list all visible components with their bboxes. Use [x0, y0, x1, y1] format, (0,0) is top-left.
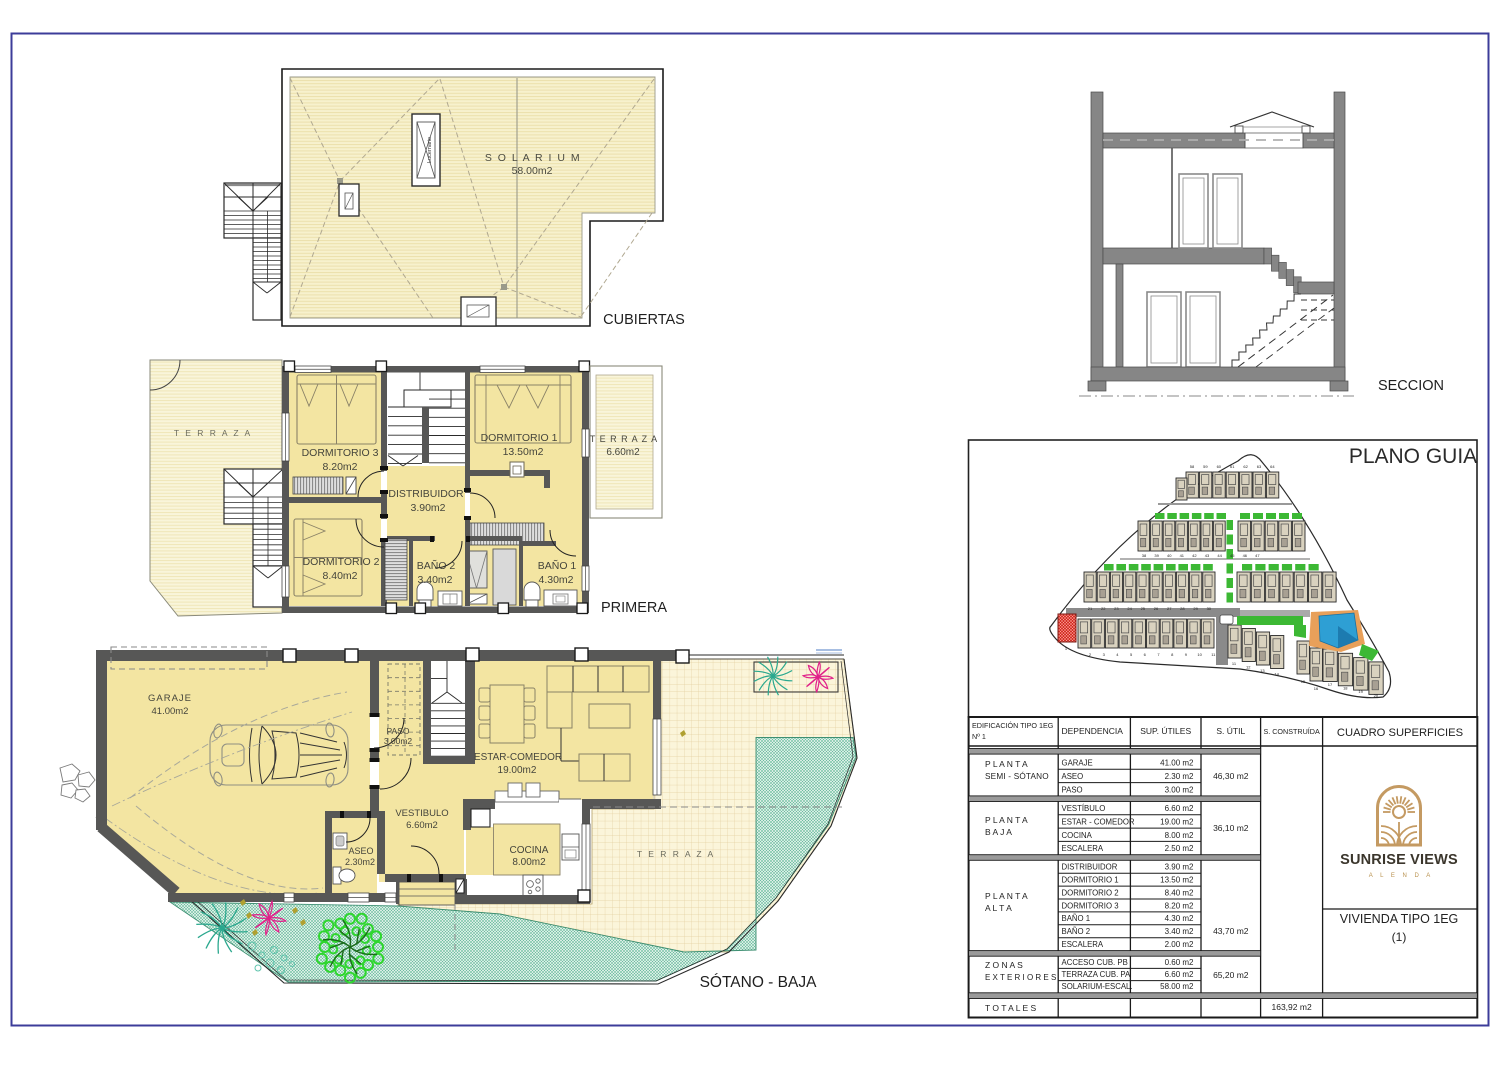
svg-text:2.50 m2: 2.50 m2 [1165, 844, 1194, 853]
svg-text:Nº 1: Nº 1 [972, 732, 986, 741]
svg-text:S. CONSTRUÍDA: S. CONSTRUÍDA [1263, 727, 1320, 736]
svg-text:42: 42 [1192, 553, 1197, 558]
svg-text:VESTÍBULO: VESTÍBULO [1062, 804, 1106, 813]
svg-text:ESTAR-COMEDOR: ESTAR-COMEDOR [474, 752, 562, 763]
svg-text:8.00 m2: 8.00 m2 [1165, 831, 1194, 840]
svg-text:58.00m2: 58.00m2 [512, 165, 553, 177]
svg-text:SEMI - SÓTANO: SEMI - SÓTANO [985, 771, 1049, 781]
svg-text:DORMITORIO 2: DORMITORIO 2 [303, 556, 380, 568]
svg-text:24: 24 [1127, 606, 1132, 611]
svg-text:DORMITORIO 3: DORMITORIO 3 [1062, 901, 1119, 910]
svg-text:T E R R A Z A: T E R R A Z A [174, 428, 252, 438]
svg-text:6.60m2: 6.60m2 [406, 820, 438, 831]
svg-text:47: 47 [1255, 553, 1260, 558]
svg-text:P L A N T A: P L A N T A [985, 891, 1028, 901]
svg-text:A L T A: A L T A [985, 903, 1012, 913]
svg-text:36,10 m2: 36,10 m2 [1213, 823, 1249, 833]
svg-text:BAÑO 1: BAÑO 1 [538, 559, 577, 572]
svg-text:DEPENDENCIA: DEPENDENCIA [1062, 726, 1124, 736]
svg-text:16: 16 [1314, 686, 1319, 691]
svg-text:BAÑO 2: BAÑO 2 [417, 559, 456, 572]
svg-text:SOLARIUM-ESCAL.: SOLARIUM-ESCAL. [1062, 982, 1133, 991]
svg-text:CUADRO SUPERFICIES: CUADRO SUPERFICIES [1337, 727, 1463, 739]
svg-text:DORMITORIO 3: DORMITORIO 3 [302, 447, 379, 459]
svg-text:ACCESO CUB. PB: ACCESO CUB. PB [1062, 958, 1128, 967]
svg-text:4.30 m2: 4.30 m2 [1165, 914, 1194, 923]
svg-text:43: 43 [1205, 553, 1210, 558]
svg-text:3.40m2: 3.40m2 [417, 574, 452, 586]
svg-text:(1): (1) [1392, 930, 1407, 944]
svg-text:BAÑO 1: BAÑO 1 [1062, 914, 1091, 923]
svg-text:18: 18 [1343, 686, 1348, 691]
svg-text:SUNRISE VIEWS: SUNRISE VIEWS [1340, 852, 1458, 868]
svg-text:8.00m2: 8.00m2 [512, 857, 546, 868]
svg-text:0.60 m2: 0.60 m2 [1165, 958, 1194, 967]
svg-text:20: 20 [1374, 693, 1379, 698]
svg-text:61: 61 [1230, 464, 1235, 469]
svg-text:3.90 m2: 3.90 m2 [1165, 863, 1194, 872]
svg-text:T E R R A Z A: T E R R A Z A [637, 849, 715, 859]
svg-text:DISTRIBUIDOR: DISTRIBUIDOR [1062, 863, 1118, 872]
svg-text:63: 63 [1257, 464, 1262, 469]
svg-text:12: 12 [1246, 665, 1251, 670]
svg-text:DORMITORIO 1: DORMITORIO 1 [481, 432, 558, 444]
svg-text:17: 17 [1328, 682, 1333, 687]
svg-text:29: 29 [1193, 606, 1198, 611]
svg-text:13.50 m2: 13.50 m2 [1160, 876, 1194, 885]
svg-text:23: 23 [1114, 606, 1119, 611]
svg-text:DORMITORIO 2: DORMITORIO 2 [1062, 888, 1119, 897]
svg-text:2.30m2: 2.30m2 [345, 857, 375, 867]
svg-text:Lucernario: Lucernario [427, 137, 433, 163]
svg-text:P L A N T A: P L A N T A [985, 815, 1028, 825]
svg-text:CUBIERTAS: CUBIERTAS [603, 312, 685, 328]
svg-text:Z O N A S: Z O N A S [985, 960, 1023, 970]
svg-text:41.00 m2: 41.00 m2 [1160, 759, 1194, 768]
svg-text:46,30 m2: 46,30 m2 [1213, 771, 1249, 781]
svg-text:14: 14 [1274, 672, 1279, 677]
svg-text:40: 40 [1167, 553, 1172, 558]
svg-text:E X T E R I O R E S: E X T E R I O R E S [985, 973, 1056, 982]
svg-text:4.30m2: 4.30m2 [538, 574, 573, 586]
svg-text:PASO: PASO [1062, 785, 1083, 794]
svg-text:8.20 m2: 8.20 m2 [1165, 901, 1194, 910]
svg-text:COCINA: COCINA [510, 845, 549, 856]
svg-text:COCINA: COCINA [1062, 831, 1093, 840]
svg-text:VIVIENDA TIPO 1EG: VIVIENDA TIPO 1EG [1340, 912, 1459, 926]
svg-text:46: 46 [1243, 553, 1248, 558]
svg-text:SUP. ÚTILES: SUP. ÚTILES [1140, 726, 1191, 736]
svg-text:26: 26 [1154, 606, 1159, 611]
svg-text:PASO: PASO [387, 726, 410, 736]
svg-text:ESTAR - COMEDOR: ESTAR - COMEDOR [1062, 818, 1135, 827]
svg-text:163,92 m2: 163,92 m2 [1272, 1002, 1312, 1012]
svg-text:44: 44 [1217, 553, 1222, 558]
svg-text:GARAJE: GARAJE [1062, 759, 1093, 768]
svg-text:VESTIBULO: VESTIBULO [395, 808, 448, 819]
svg-text:19.00m2: 19.00m2 [498, 765, 537, 776]
svg-text:GARAJE: GARAJE [148, 693, 192, 704]
svg-text:ESCALERA: ESCALERA [1062, 844, 1104, 853]
svg-text:13.50m2: 13.50m2 [503, 446, 544, 458]
svg-text:3.40 m2: 3.40 m2 [1165, 927, 1194, 936]
svg-text:38: 38 [1142, 553, 1147, 558]
svg-text:58.00 m2: 58.00 m2 [1160, 982, 1194, 991]
svg-text:T E R R A Z A: T E R R A Z A [590, 434, 658, 444]
svg-text:BAÑO 2: BAÑO 2 [1062, 927, 1091, 936]
svg-text:41.00m2: 41.00m2 [152, 706, 189, 717]
svg-text:S. ÚTIL: S. ÚTIL [1216, 726, 1245, 736]
svg-text:8.40m2: 8.40m2 [322, 570, 357, 582]
svg-text:6.60m2: 6.60m2 [606, 447, 640, 458]
svg-text:3.00 m2: 3.00 m2 [1165, 785, 1194, 794]
svg-text:SECCION: SECCION [1378, 378, 1444, 394]
svg-text:P L A N T A: P L A N T A [985, 759, 1028, 769]
svg-text:6.60 m2: 6.60 m2 [1165, 970, 1194, 979]
svg-text:65,20 m2: 65,20 m2 [1213, 970, 1249, 980]
svg-text:62: 62 [1243, 464, 1248, 469]
svg-text:A L E N D A: A L E N D A [1369, 873, 1433, 879]
svg-text:EDIFICACIÓN TIPO 1EG: EDIFICACIÓN TIPO 1EG [972, 721, 1054, 730]
svg-text:8.20m2: 8.20m2 [322, 461, 357, 473]
svg-text:3.90m2: 3.90m2 [410, 502, 445, 514]
svg-text:58: 58 [1190, 464, 1195, 469]
svg-text:ASEO: ASEO [348, 846, 373, 856]
svg-text:19: 19 [1358, 689, 1363, 694]
svg-text:60: 60 [1217, 464, 1222, 469]
svg-text:45: 45 [1230, 553, 1235, 558]
svg-text:S O L A R I U M: S O L A R I U M [485, 152, 581, 164]
svg-text:6.60 m2: 6.60 m2 [1165, 804, 1194, 813]
svg-text:ASEO: ASEO [1062, 772, 1084, 781]
svg-text:2.30 m2: 2.30 m2 [1165, 772, 1194, 781]
svg-text:13: 13 [1260, 668, 1265, 673]
svg-text:2.00 m2: 2.00 m2 [1165, 940, 1194, 949]
svg-text:3.00m2: 3.00m2 [384, 736, 413, 746]
svg-text:T O T A L E S: T O T A L E S [985, 1003, 1037, 1013]
svg-text:B A J A: B A J A [985, 827, 1012, 837]
svg-text:DORMITORIO 1: DORMITORIO 1 [1062, 876, 1119, 885]
svg-text:TERRAZA CUB. PA: TERRAZA CUB. PA [1062, 970, 1132, 979]
svg-text:DISTRIBUIDOR: DISTRIBUIDOR [388, 488, 464, 500]
svg-text:28: 28 [1180, 606, 1185, 611]
svg-text:10: 10 [1197, 652, 1202, 657]
svg-text:PLANO GUIA: PLANO GUIA [1349, 445, 1477, 468]
svg-text:SÓTANO - BAJA: SÓTANO - BAJA [700, 974, 818, 991]
svg-text:22: 22 [1101, 606, 1106, 611]
svg-text:43,70 m2: 43,70 m2 [1213, 926, 1249, 936]
svg-text:39: 39 [1154, 553, 1159, 558]
svg-text:30: 30 [1207, 606, 1212, 611]
svg-text:ESCALERA: ESCALERA [1062, 940, 1104, 949]
svg-text:25: 25 [1141, 606, 1146, 611]
svg-text:21: 21 [1088, 606, 1093, 611]
svg-text:27: 27 [1167, 606, 1172, 611]
svg-text:64: 64 [1270, 464, 1275, 469]
svg-text:41: 41 [1180, 553, 1185, 558]
svg-text:19.00 m2: 19.00 m2 [1160, 818, 1194, 827]
svg-text:15: 15 [1301, 679, 1306, 684]
svg-text:59: 59 [1203, 464, 1208, 469]
svg-text:PRIMERA: PRIMERA [601, 600, 667, 616]
svg-text:8.40 m2: 8.40 m2 [1165, 888, 1194, 897]
